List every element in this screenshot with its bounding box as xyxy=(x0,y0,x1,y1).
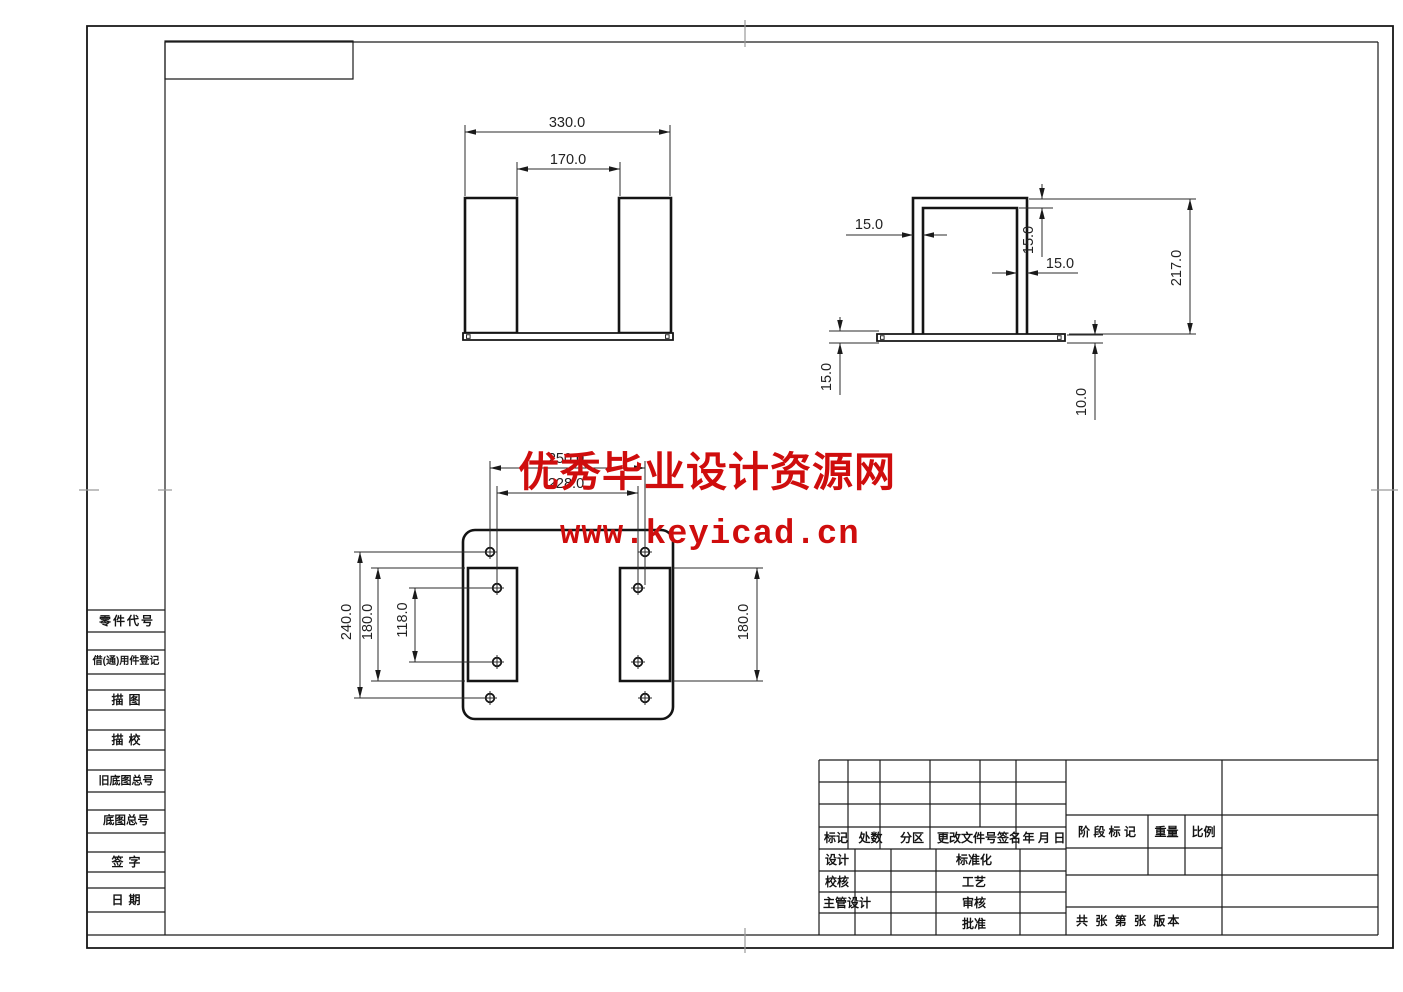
dim-bottom-height: 240.0 xyxy=(339,604,355,640)
watermark-line2: www.keyicad.cn xyxy=(560,516,860,554)
dim-front-opening: 170.0 xyxy=(550,152,586,168)
dim-side-wall-right: 15.0 xyxy=(1046,256,1074,272)
tb-right-scale: 比例 xyxy=(1185,815,1222,848)
tb-header-change: 更改文件号签名 xyxy=(936,827,1022,849)
sidebar-label-master-no: 底图总号 xyxy=(87,810,165,833)
dim-bottom-holes-pitch: 118.0 xyxy=(395,602,411,637)
tb-header-count: 处数 xyxy=(853,827,888,849)
sidebar-label-date: 日期 xyxy=(87,888,165,912)
sidebar-label-signature: 签字 xyxy=(87,852,165,872)
sidebar-label-trace-check: 描校 xyxy=(87,730,165,750)
dim-side-wall-left: 15.0 xyxy=(855,217,883,233)
tb-header-mark: 标记 xyxy=(819,827,853,849)
sidebar-label-tracing: 描图 xyxy=(87,690,165,710)
tb-right-stage: 阶 段 标 记 xyxy=(1066,815,1148,848)
tb-cell-standard: 标准化 xyxy=(936,849,1012,871)
tb-cell-review: 审核 xyxy=(936,892,1012,913)
dim-side-height: 217.0 xyxy=(1169,250,1185,286)
dim-side-flange: 15.0 xyxy=(819,363,835,391)
tb-right-weight: 重量 xyxy=(1148,815,1185,848)
tb-header-date: 年 月 日 xyxy=(1022,827,1066,849)
tb-right-sheet: 共 张 第 张 版本 xyxy=(1066,907,1232,935)
dim-bottom-pocket-right: 180.0 xyxy=(736,604,752,640)
watermark-line1: 优秀毕业设计资源网 xyxy=(518,438,896,498)
dim-side-top: 15.0 xyxy=(1021,226,1037,254)
tb-cell-process: 工艺 xyxy=(936,871,1012,892)
front-view: 330.0 170.0 xyxy=(463,115,673,340)
tb-cell-check: 校核 xyxy=(819,871,855,892)
tb-cell-design: 设计 xyxy=(819,849,855,871)
sidebar-label-old-master-no: 旧底图总号 xyxy=(87,770,165,792)
tb-header-zone: 分区 xyxy=(888,827,936,849)
tb-cell-chief: 主管设计 xyxy=(819,892,883,913)
side-view: 15.0 15.0 15.0 217.0 15.0 10.0 xyxy=(819,184,1196,420)
sidebar-label-part-code: 零件代号 xyxy=(87,610,165,632)
dim-side-base: 10.0 xyxy=(1074,388,1090,416)
sidebar-label-borrowed: 借(通)用件登记 xyxy=(87,650,165,674)
part-code-box xyxy=(165,41,353,79)
dim-front-width: 330.0 xyxy=(549,115,585,131)
cad-drawing-page: { "watermark": { "line1": "优秀毕业设计资源网", "… xyxy=(0,0,1403,992)
dim-bottom-pocket-left: 180.0 xyxy=(360,604,376,640)
tb-cell-approve: 批准 xyxy=(936,913,1012,935)
